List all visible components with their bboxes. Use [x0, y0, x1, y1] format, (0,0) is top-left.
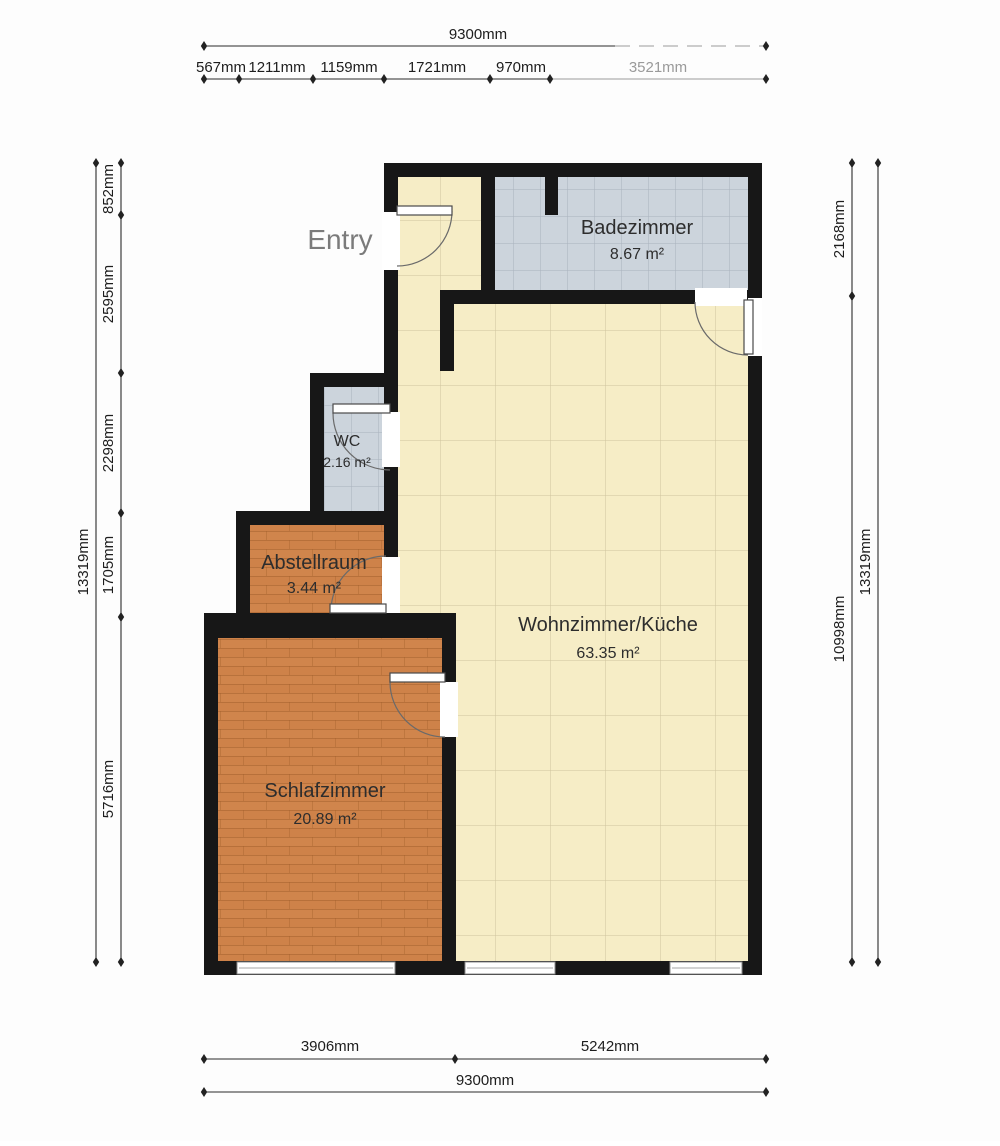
dim-top-seg-0: 567mm	[196, 59, 246, 76]
room-area-badezimmer: 8.67 m²	[610, 246, 665, 263]
room-name-badezimmer: Badezimmer	[581, 217, 694, 239]
dimension-left: 13319mm 852mm 2595mm 2298mm 1705mm 5716m…	[75, 158, 124, 967]
living-room-floor-lower	[456, 613, 748, 961]
dim-left-seg-4: 5716mm	[100, 760, 117, 818]
dim-left-seg-3: 1705mm	[100, 536, 117, 594]
dim-left-seg-2: 2298mm	[100, 414, 117, 472]
room-name-wohnzimmer: Wohnzimmer/Küche	[518, 614, 698, 636]
wall-stub-living	[440, 304, 454, 371]
dim-left-seg-1: 2595mm	[100, 265, 117, 323]
dim-bottom-seg-1: 5242mm	[581, 1038, 639, 1055]
room-name-schlafzimmer: Schlafzimmer	[264, 780, 385, 802]
room-area-abstellraum: 3.44 m²	[287, 580, 342, 597]
wall-right	[748, 163, 762, 975]
dim-right-seg-1: 10998mm	[831, 596, 848, 663]
wall-bedroom-left	[204, 638, 218, 961]
dim-left-total: 13319mm	[75, 529, 92, 596]
floor-plan-page: Entry Badezimmer 8.67 m² WC 2.16 m² Abst…	[0, 0, 1000, 1141]
wc-door-opening	[382, 412, 400, 467]
dimension-right: 2168mm 10998mm 13319mm	[831, 158, 881, 967]
room-name-wc: WC	[334, 433, 361, 450]
wall-bathroom-left	[481, 163, 495, 304]
floor-plan-canvas: Entry Badezimmer 8.67 m² WC 2.16 m² Abst…	[0, 0, 1000, 1141]
bedroom-door-panel	[390, 673, 445, 682]
wall-top	[384, 163, 762, 177]
entry-passage-floor	[398, 290, 440, 304]
dim-top-seg-5: 3521mm	[629, 59, 687, 76]
wall-bedroom-top	[204, 613, 456, 638]
wall-storage-top	[236, 511, 398, 525]
dim-right-total: 13319mm	[857, 529, 874, 596]
dim-top-seg-2: 1159mm	[320, 59, 377, 76]
dim-left-seg-0: 852mm	[100, 164, 117, 214]
dim-bottom-total: 9300mm	[456, 1072, 514, 1089]
bathroom-door-opening	[695, 288, 747, 306]
room-name-abstellraum: Abstellraum	[261, 552, 367, 574]
entry-door-opening	[382, 212, 400, 270]
bathroom-door-panel	[744, 300, 753, 354]
entry-hall-floor	[398, 177, 481, 290]
dim-top-seg-3: 1721mm	[408, 59, 466, 76]
wall-wc-left	[310, 373, 324, 525]
room-area-wohnzimmer: 63.35 m²	[576, 645, 640, 662]
room-area-wc: 2.16 m²	[323, 454, 371, 470]
bedroom-door-opening	[440, 682, 458, 737]
dim-top-total: 9300mm	[449, 26, 507, 43]
dim-bottom-seg-0: 3906mm	[301, 1038, 359, 1055]
wall-storage-left	[236, 511, 250, 613]
dim-right-seg-0: 2168mm	[831, 200, 848, 258]
room-area-schlafzimmer: 20.89 m²	[293, 811, 357, 828]
dimension-top: 9300mm 567mm 1211mm 1159mm 1721mm 970mm …	[196, 26, 769, 84]
wall-stub-bathroom	[545, 163, 558, 215]
dimension-bottom: 3906mm 5242mm 9300mm	[201, 1038, 769, 1097]
storage-door-panel	[330, 604, 386, 613]
dim-top-seg-1: 1211mm	[248, 59, 305, 76]
entry-label: Entry	[307, 224, 372, 255]
entry-door-panel	[397, 206, 452, 215]
wc-door-panel	[333, 404, 390, 413]
dim-top-seg-4: 970mm	[496, 59, 546, 76]
